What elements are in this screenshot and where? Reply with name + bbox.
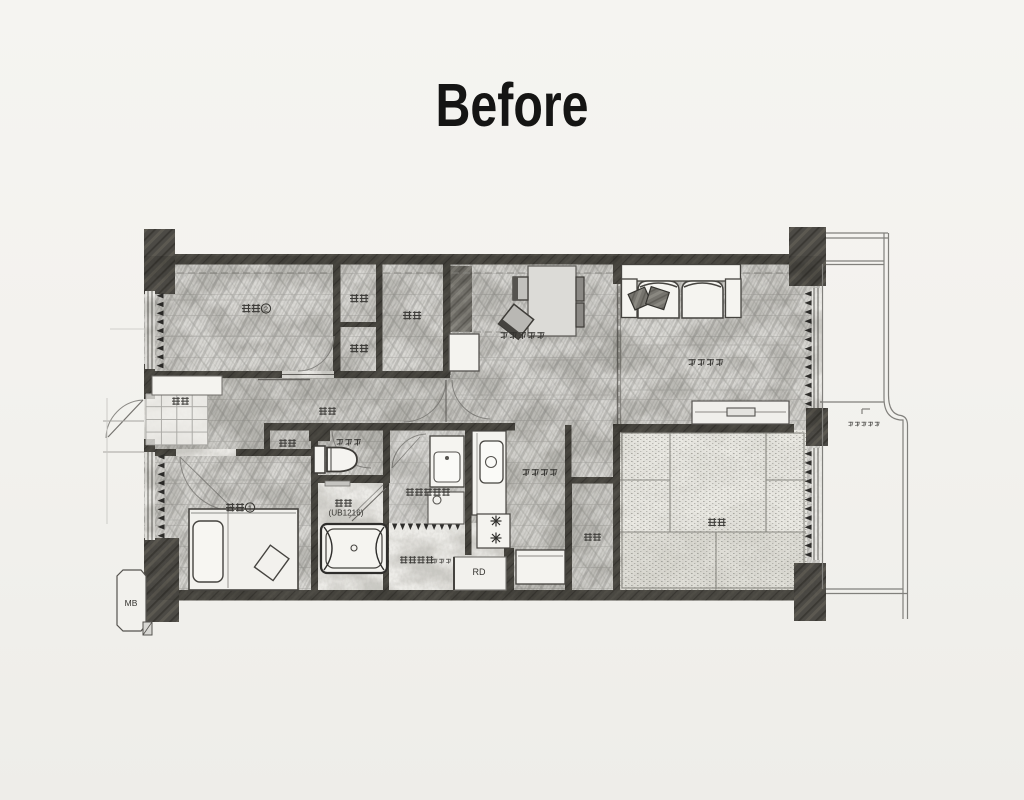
svg-text:1: 1 bbox=[248, 504, 252, 513]
svg-text:Before: Before bbox=[436, 71, 589, 139]
svg-text:MB: MB bbox=[125, 598, 138, 608]
svg-text:(UB1216): (UB1216) bbox=[328, 509, 363, 518]
svg-text:2: 2 bbox=[264, 305, 268, 314]
svg-text:RD: RD bbox=[473, 567, 486, 577]
